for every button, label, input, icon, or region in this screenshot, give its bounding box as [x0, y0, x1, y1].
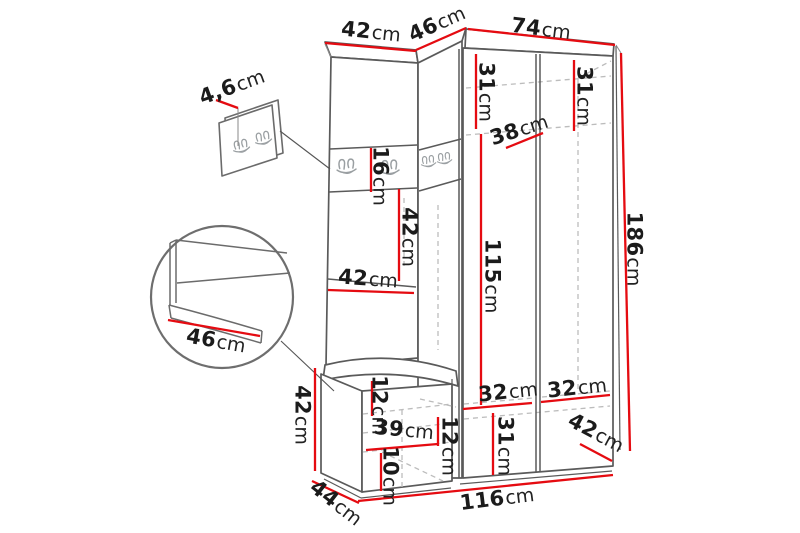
- dim-value: 39: [373, 415, 405, 442]
- dim-unit: cm: [481, 284, 503, 313]
- dim-value: 74: [510, 13, 543, 40]
- dim-value: 16: [369, 146, 393, 176]
- dim-unit: cm: [573, 97, 595, 126]
- dim-value: 32: [477, 380, 509, 407]
- dim-unit: cm: [494, 447, 516, 476]
- dim-unit: cm: [623, 257, 645, 286]
- dim-unit: cm: [541, 19, 572, 44]
- dim-unit: cm: [438, 447, 460, 476]
- furniture-dimension-diagram: 42cm 46cm 74cm 4,6cm 16cm 42cm 42cm 31cm…: [0, 0, 800, 533]
- dim-value: 42: [340, 16, 372, 43]
- dim-value: 46: [185, 323, 219, 352]
- dim-value: 12: [368, 375, 392, 405]
- dim-unit: cm: [369, 177, 391, 206]
- dim-value: 10: [379, 446, 403, 476]
- dim-unit: cm: [504, 484, 535, 509]
- dim-middle-height: 42cm: [399, 207, 420, 267]
- dim-unit: cm: [508, 378, 539, 403]
- dim-value: 31: [475, 62, 499, 92]
- dim-unit: cm: [215, 331, 247, 358]
- dim-value: 12: [438, 416, 462, 446]
- dim-unit: cm: [404, 420, 435, 444]
- dim-unit: cm: [368, 269, 398, 293]
- dim-value: 31: [494, 416, 518, 446]
- dim-base-height: 10cm: [380, 446, 401, 506]
- dim-open-section-height: 115cm: [482, 239, 503, 314]
- dim-hook-strip-height: 16cm: [370, 146, 391, 206]
- hook-panel-detail: [219, 100, 283, 176]
- dim-unit: cm: [475, 93, 497, 122]
- dim-middle-width: 42cm: [337, 266, 398, 291]
- dim-unit: cm: [398, 238, 420, 267]
- dim-unit: cm: [379, 477, 401, 506]
- dim-value: 42: [398, 207, 422, 237]
- dim-bench-inner-width: 39cm: [373, 417, 434, 443]
- dim-value: 186: [623, 212, 647, 257]
- dim-unit: cm: [291, 416, 313, 445]
- dim-unit: cm: [371, 22, 402, 47]
- dim-upper-right-height: 31cm: [574, 66, 595, 126]
- dim-value: 32: [546, 376, 578, 403]
- dim-drawer-height: 12cm: [439, 416, 460, 476]
- dim-bottom-door-height: 31cm: [495, 416, 516, 476]
- dim-value: 115: [481, 239, 505, 284]
- dim-bench-height: 42cm: [292, 385, 313, 445]
- dim-value: 42: [291, 385, 315, 415]
- dim-total-height: 186cm: [624, 212, 645, 287]
- dim-unit: cm: [577, 374, 608, 399]
- dim-value: 42: [337, 264, 368, 290]
- dim-value: 31: [573, 66, 597, 96]
- dim-upper-left-height: 31cm: [476, 62, 497, 122]
